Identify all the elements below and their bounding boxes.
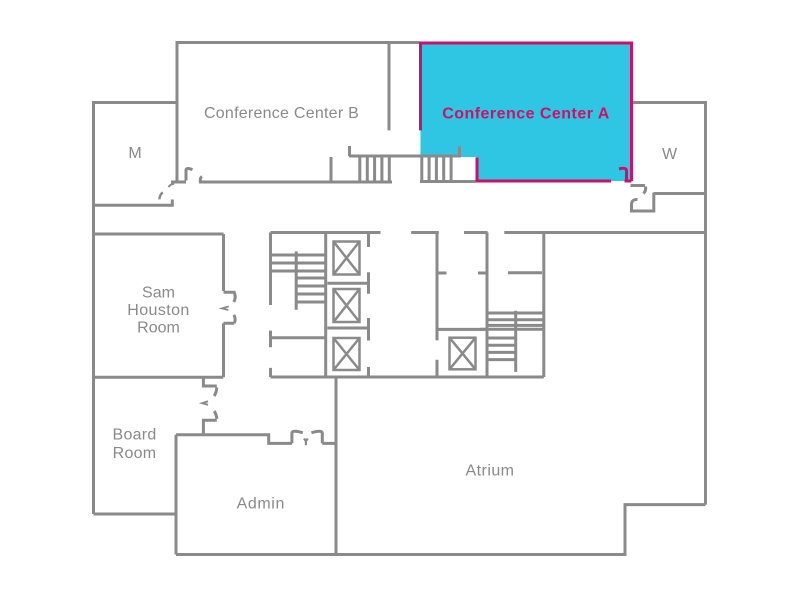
svg-text:Board: Board [113, 427, 157, 444]
svg-text:M: M [128, 145, 141, 162]
svg-text:Room: Room [113, 445, 157, 462]
svg-text:W: W [662, 146, 678, 163]
svg-text:Houston: Houston [127, 302, 189, 319]
svg-text:Conference Center A: Conference Center A [442, 106, 610, 123]
svg-text:Room: Room [137, 320, 180, 337]
svg-text:Admin: Admin [237, 495, 285, 512]
svg-text:Sam: Sam [142, 284, 175, 301]
svg-text:Conference Center B: Conference Center B [204, 105, 359, 122]
svg-text:Atrium: Atrium [466, 463, 515, 480]
